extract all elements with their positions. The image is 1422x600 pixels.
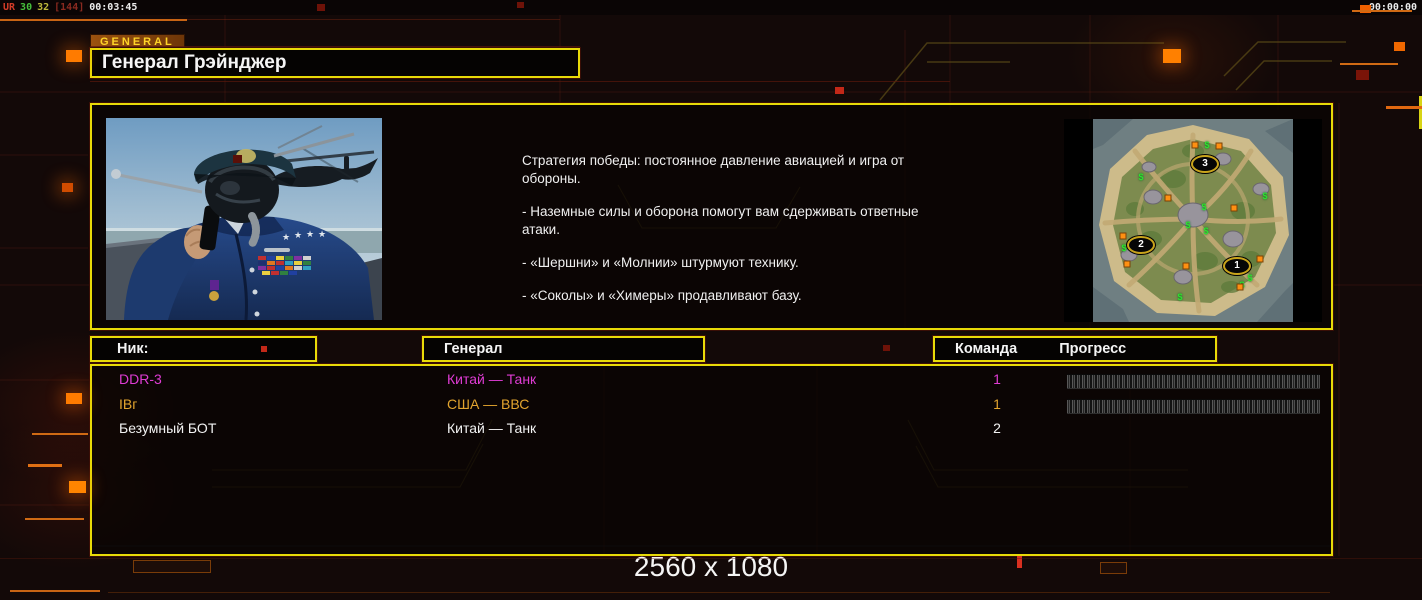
start-position-marker: 2 bbox=[1127, 236, 1155, 254]
supply-dock-icon: $ bbox=[1203, 226, 1208, 236]
decor-line bbox=[32, 433, 88, 435]
player-nick: Безумный БОТ bbox=[119, 420, 216, 436]
decor-square bbox=[261, 346, 267, 352]
decor-frame bbox=[1100, 562, 1127, 574]
decor-line bbox=[10, 590, 100, 592]
decor-square bbox=[69, 481, 86, 493]
oil-derrick-icon bbox=[1124, 261, 1131, 268]
column-header-team: Команда bbox=[955, 341, 1017, 357]
briefing-paragraph: - Наземные силы и оборона помогут вам сд… bbox=[522, 203, 942, 239]
decor-line bbox=[187, 19, 560, 20]
loading-screen: { "colors": { "accent_yellow": "#e8da08"… bbox=[0, 0, 1422, 600]
player-general: США — ВВС bbox=[447, 396, 529, 412]
supply-dock-icon: $ bbox=[1185, 220, 1190, 230]
column-header-nick: Ник: bbox=[90, 336, 317, 362]
oil-derrick-icon bbox=[1192, 142, 1199, 149]
decor-line bbox=[25, 518, 84, 520]
minimap: $$$$$$$$$$321 bbox=[1064, 119, 1322, 322]
player-row: Безумный БОТКитай — Танк2 bbox=[92, 417, 1331, 442]
oil-derrick-icon bbox=[1216, 143, 1223, 150]
player-team: 2 bbox=[977, 420, 1017, 436]
supply-dock-icon: $ bbox=[1201, 202, 1206, 212]
player-nick: DDR-3 bbox=[119, 371, 162, 387]
decor-square bbox=[1356, 70, 1369, 80]
decor-line bbox=[0, 558, 1422, 559]
player-team: 1 bbox=[977, 371, 1017, 387]
start-position-marker: 3 bbox=[1191, 155, 1219, 173]
general-info-panel: ★★★★ Стратегия победы: постоя bbox=[90, 103, 1333, 330]
svg-text:★: ★ bbox=[294, 231, 302, 241]
decor-line bbox=[0, 19, 187, 21]
supply-dock-icon: $ bbox=[1121, 243, 1126, 253]
decor-square bbox=[883, 345, 890, 351]
svg-text:★: ★ bbox=[318, 230, 326, 240]
briefing-paragraph: - «Шершни» и «Молнии» штурмуют технику. bbox=[522, 254, 942, 272]
decor-square bbox=[1394, 42, 1405, 51]
resolution-label: 2560 x 1080 bbox=[0, 551, 1422, 583]
decor-line bbox=[108, 592, 1330, 593]
player-general: Китай — Танк bbox=[447, 371, 536, 387]
perf-overlay-segment: [144] bbox=[54, 2, 84, 13]
perf-overlay-segment: 00:03:45 bbox=[89, 2, 137, 13]
general-portrait: ★★★★ bbox=[106, 118, 382, 320]
player-table-panel: DDR-3Китай — Танк1IBгСША — ВВС1Безумный … bbox=[90, 364, 1333, 556]
player-team: 1 bbox=[977, 396, 1017, 412]
oil-derrick-icon bbox=[1237, 284, 1244, 291]
oil-derrick-icon bbox=[1231, 205, 1238, 212]
oil-derrick-icon bbox=[1165, 195, 1172, 202]
decor-square bbox=[66, 50, 82, 62]
supply-dock-icon: $ bbox=[1262, 191, 1267, 201]
decor-line bbox=[1386, 106, 1422, 109]
svg-text:★: ★ bbox=[306, 230, 314, 240]
oil-derrick-icon bbox=[1120, 233, 1127, 240]
decor-line bbox=[90, 46, 580, 47]
top-black-strip bbox=[0, 0, 1422, 15]
decor-line bbox=[1352, 10, 1412, 12]
decor-square bbox=[62, 183, 73, 192]
oil-derrick-icon bbox=[1257, 256, 1264, 263]
player-row: IBгСША — ВВС1 bbox=[92, 393, 1331, 418]
column-header-general: Генерал bbox=[422, 336, 705, 362]
perf-overlay-segment: UR bbox=[3, 2, 15, 13]
decor-square bbox=[317, 4, 325, 11]
player-rows: DDR-3Китай — Танк1IBгСША — ВВС1Безумный … bbox=[92, 366, 1331, 554]
decor-line bbox=[1340, 63, 1398, 65]
decor-square bbox=[835, 87, 844, 94]
player-progress-bar bbox=[1067, 374, 1320, 389]
supply-dock-icon: $ bbox=[1138, 172, 1143, 182]
strategy-briefing: Стратегия победы: постоянное давление ав… bbox=[522, 152, 942, 320]
start-position-marker: 1 bbox=[1223, 257, 1251, 275]
decor-frame bbox=[133, 560, 211, 573]
oil-derrick-icon bbox=[1183, 263, 1190, 270]
supply-dock-icon: $ bbox=[1177, 292, 1182, 302]
decor-square bbox=[66, 393, 82, 404]
decor-square bbox=[233, 155, 242, 163]
supply-dock-icon: $ bbox=[1204, 140, 1209, 150]
player-row: DDR-3Китай — Танк1 bbox=[92, 368, 1331, 393]
briefing-paragraph: - «Соколы» и «Химеры» продавливают базу. bbox=[522, 287, 942, 305]
perf-overlay-segment: 30 bbox=[20, 2, 32, 13]
page-title: Генерал Грэйнджер bbox=[92, 50, 578, 76]
purple-heart-ribbon bbox=[210, 280, 219, 290]
player-nick: IBг bbox=[119, 396, 137, 412]
supply-dock-icon: $ bbox=[1247, 273, 1252, 283]
general-title-box: Генерал Грэйнджер bbox=[90, 48, 580, 78]
column-header-team-progress: Команда Прогресс bbox=[933, 336, 1217, 362]
player-progress-bar bbox=[1067, 399, 1320, 414]
player-general: Китай — Танк bbox=[447, 420, 536, 436]
decor-line bbox=[28, 464, 62, 467]
svg-text:★: ★ bbox=[282, 233, 290, 243]
decor-square bbox=[1163, 49, 1181, 63]
perf-overlay: UR3032[144]00:03:45 bbox=[3, 2, 142, 13]
general-portrait-art: ★★★★ bbox=[106, 118, 382, 320]
column-header-progress: Прогресс bbox=[1059, 341, 1126, 357]
briefing-paragraph: Стратегия победы: постоянное давление ав… bbox=[522, 152, 942, 188]
minimap-terrain bbox=[1064, 119, 1322, 322]
decor-line bbox=[90, 81, 950, 82]
perf-overlay-segment: 32 bbox=[37, 2, 49, 13]
decor-square bbox=[517, 2, 524, 8]
